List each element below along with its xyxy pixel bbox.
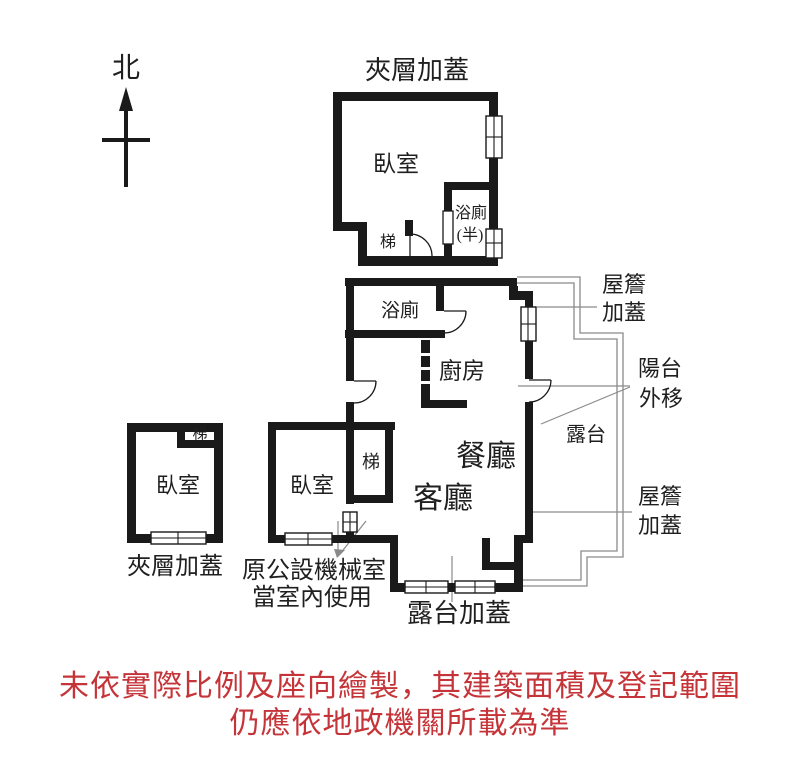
balcony-label-1: 陽台 <box>638 358 682 380</box>
disclaimer-line-1: 未依實際比例及座向繪製，其建築面積及登記範圍 <box>59 672 741 702</box>
north-arrow <box>102 87 150 187</box>
window <box>343 512 357 532</box>
window <box>486 229 502 258</box>
terrace-cover-label: 露台加蓋 <box>407 601 511 627</box>
machine-room-label-2: 當室內使用 <box>252 586 372 610</box>
upper-bath-label-2: (半) <box>457 228 484 244</box>
window <box>151 532 206 544</box>
eave-bottom-label-2: 加蓋 <box>638 515 682 537</box>
machine-room-label-1: 原公設機械室 <box>242 559 386 583</box>
left-bedroom-stairs-label: 梯 <box>192 428 207 443</box>
mezzanine-top-label: 夾層加蓋 <box>365 58 469 84</box>
door-entry-left <box>354 381 376 403</box>
floorplan-page: 北 夾層加蓋 臥室 梯 浴廁 (半) 浴廁 廚房 餐廳 客廳 梯 露台 陽台 外… <box>0 0 800 759</box>
main-bath-label: 浴廁 <box>381 302 419 321</box>
door-frame <box>443 211 453 244</box>
living-label: 客廳 <box>413 484 473 514</box>
leader-arrowhead <box>334 549 345 558</box>
window <box>405 581 448 593</box>
window <box>486 116 502 158</box>
door-terrace <box>529 380 551 402</box>
main-stairs-label: 梯 <box>362 453 380 471</box>
eave-top-label-1: 屋簷 <box>602 274 646 296</box>
left-bedroom-label: 臥室 <box>156 475 200 497</box>
upper-bedroom-label: 臥室 <box>373 153 419 176</box>
mid-bedroom-label: 臥室 <box>290 475 334 497</box>
kitchen-label: 廚房 <box>439 360 485 383</box>
upper-stairs-label: 梯 <box>380 235 396 251</box>
balcony-label-2: 外移 <box>639 388 683 410</box>
north-label: 北 <box>112 55 140 83</box>
door-arc <box>410 234 432 256</box>
window <box>455 581 495 593</box>
mezzanine-left-label: 夾層加蓋 <box>127 555 223 579</box>
eave-top-label-2: 加蓋 <box>602 302 646 324</box>
door-bathroom <box>444 311 466 333</box>
window <box>521 307 536 341</box>
disclaimer-line-2: 仍應依地政機關所載為準 <box>230 709 571 739</box>
window <box>285 533 332 545</box>
eave-bottom-label-1: 屋簷 <box>638 486 682 508</box>
upper-bath-label-1: 浴廁 <box>455 206 487 222</box>
terrace-label: 露台 <box>566 425 606 445</box>
dining-label: 餐廳 <box>456 442 516 472</box>
